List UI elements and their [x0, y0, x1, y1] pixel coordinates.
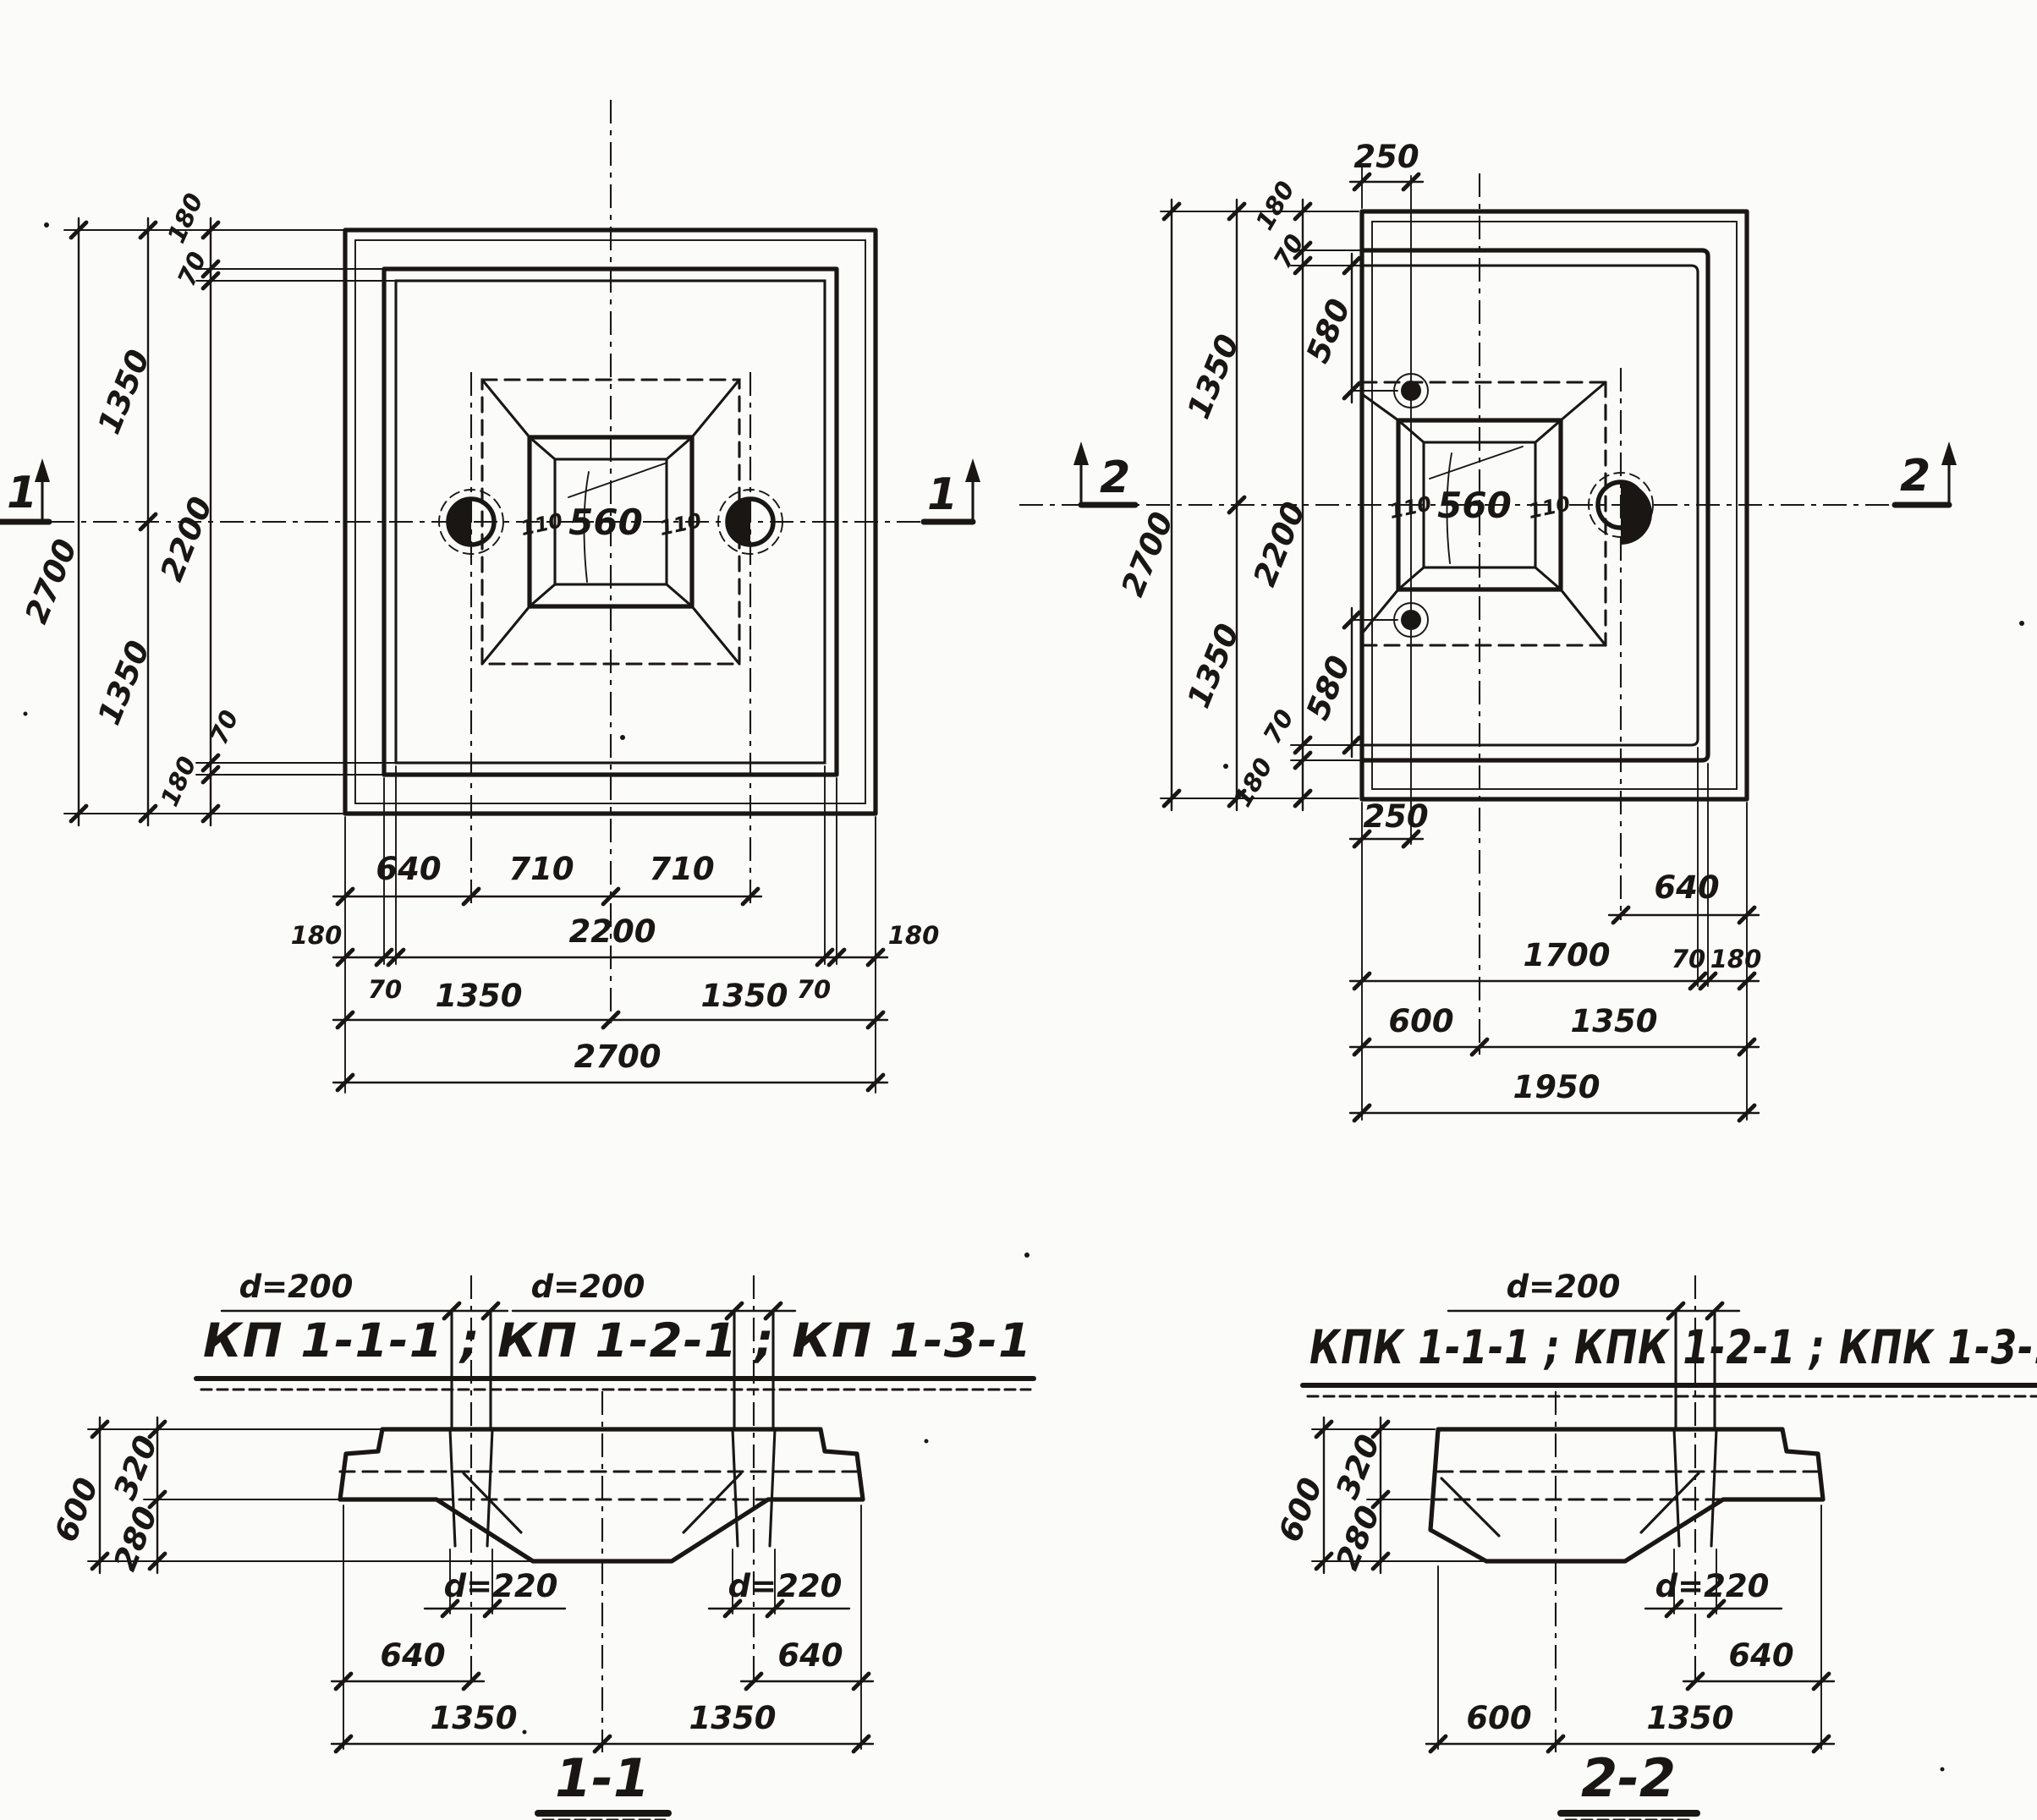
- dim-label: 640: [1654, 869, 1719, 906]
- dim-label: 1950: [1513, 1069, 1600, 1105]
- dim-label: 600: [47, 1472, 106, 1547]
- left-plan-dimensions: 180 70 1350 2700 2200 1350 70 180 640 71…: [18, 189, 939, 1093]
- dim-label: d=200: [531, 1269, 645, 1305]
- dim-label: 180: [291, 921, 343, 950]
- section-2-2-outline: [1430, 1429, 1823, 1561]
- title-right: КПК 1-1-1 ; КПК 1-2-1 ; КПК 1-3-1: [1303, 1320, 2037, 1396]
- right-plan-axes: [1019, 173, 1895, 1055]
- right-plan: 560 110 110 250 180 70 580 1350 2700 220…: [1019, 139, 1957, 1121]
- dim-label: 180: [155, 752, 202, 810]
- dim-label: 640: [777, 1637, 843, 1674]
- dim-label: 2700: [18, 534, 84, 629]
- dim-label: 1350: [1647, 1700, 1734, 1736]
- section-marker-label: 2: [1100, 452, 1130, 503]
- left-plan: 560 110 110 180 70 1350 2700 2200 1350 7…: [0, 100, 980, 1093]
- dim-label: 710: [508, 851, 574, 887]
- socket-bevel-label: 110: [657, 508, 704, 540]
- blueprint-page: 560 110 110 180 70 1350 2700 2200 1350 7…: [0, 0, 2037, 1820]
- dim-label: 580: [1299, 650, 1358, 725]
- dim-label: 1350: [701, 978, 788, 1014]
- section-marker-2-left: 2: [1073, 441, 1135, 505]
- dim-label: 580: [1299, 293, 1358, 368]
- dim-label: 2700: [574, 1039, 662, 1075]
- dim-label: 1350: [436, 978, 523, 1014]
- section-2-2-title: 2-2: [1561, 1747, 1697, 1820]
- dim-label: 1350: [1571, 1003, 1658, 1039]
- dim-label: d=220: [728, 1568, 843, 1604]
- section-1-1-title: 1-1: [538, 1747, 668, 1820]
- dim-label: 180: [1710, 945, 1762, 973]
- dim-label: 70: [1258, 704, 1300, 748]
- section-marker-1-left: 1: [0, 458, 50, 522]
- paper-specks: [24, 222, 2025, 1772]
- dim-label: 180: [1249, 176, 1300, 234]
- title-left: КП 1-1-1 ; КП 1-2-1 ; КП 1-3-1: [196, 1313, 1034, 1390]
- section-name: 2-2: [1581, 1747, 1676, 1809]
- dim-label: 70: [368, 975, 402, 1004]
- dim-label: d=200: [1507, 1269, 1621, 1305]
- section-marker-label: 2: [1900, 451, 1930, 502]
- dim-label: 600: [1388, 1003, 1453, 1039]
- dim-label: 1350: [431, 1700, 518, 1736]
- right-plan-dimensions: 250 180 70 580 1350 2700 2200 1350 70 58…: [1114, 139, 1761, 1121]
- section-marker-label: 1: [7, 468, 37, 518]
- dim-label: 70: [797, 975, 831, 1004]
- dim-label: 180: [1227, 753, 1278, 811]
- dim-label: 250: [1353, 139, 1419, 175]
- section-marker-2-right: 2: [1895, 441, 1957, 505]
- dim-label: 1350: [689, 1700, 777, 1736]
- dim-label: 640: [380, 1637, 445, 1674]
- dim-label: 70: [1672, 945, 1705, 973]
- dim-label: 600: [1271, 1472, 1330, 1547]
- blueprint-canvas: 560 110 110 180 70 1350 2700 2200 1350 7…: [0, 0, 2037, 1820]
- dim-label: 1700: [1524, 937, 1611, 973]
- product-codes-left: КП 1-1-1 ; КП 1-2-1 ; КП 1-3-1: [203, 1313, 1032, 1368]
- socket-bevel-label: 110: [519, 508, 565, 540]
- dim-label: 180: [888, 921, 940, 950]
- product-codes-right: КПК 1-1-1 ; КПК 1-2-1 ; КПК 1-3-1: [1309, 1320, 2037, 1374]
- section-marker-1-right: 1: [924, 458, 980, 522]
- dim-label: d=200: [239, 1269, 354, 1305]
- dim-label: 640: [1728, 1637, 1793, 1674]
- dim-label: d=220: [444, 1568, 558, 1604]
- dim-label: 2200: [569, 913, 656, 950]
- dim-label: 250: [1363, 798, 1428, 835]
- section-name: 1-1: [555, 1747, 650, 1809]
- dim-label: 320: [1329, 1429, 1387, 1504]
- dim-label: 600: [1466, 1700, 1531, 1736]
- dim-label: 710: [649, 851, 714, 887]
- dim-label: 640: [376, 851, 441, 887]
- dim-label: d=220: [1655, 1568, 1770, 1604]
- section-marker-label: 1: [927, 469, 958, 520]
- socket-bevel-label: 110: [1526, 491, 1573, 524]
- dim-label: 320: [107, 1430, 165, 1505]
